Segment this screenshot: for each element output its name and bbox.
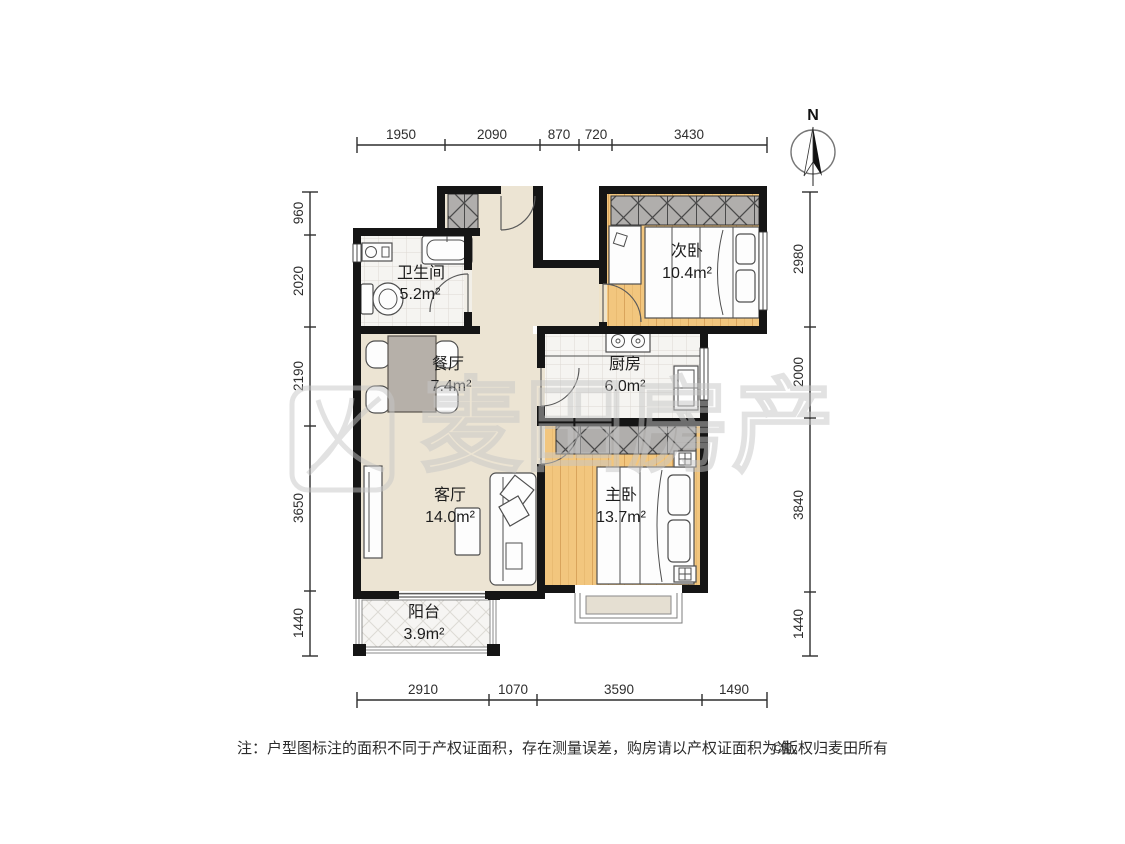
dim-top-1: 1950 [386, 127, 416, 142]
balcony-slider-icon [399, 594, 485, 598]
footer: 注：户型图标注的面积不同于产权证面积，存在测量误差，购房请以产权证面积为准。 ©… [237, 740, 888, 757]
bay-window [575, 593, 682, 623]
washing-machine-icon [362, 243, 392, 261]
dim-bottom-3: 3590 [604, 682, 634, 697]
master-name: 主卧 [605, 486, 637, 504]
dim-right-3: 3840 [791, 490, 806, 520]
bedroom2-window-icon [759, 232, 767, 310]
dim-bottom-4: 1490 [719, 682, 749, 697]
dim-left-1: 960 [291, 202, 306, 225]
floorplan-svg: 1950 2090 870 720 3430 2910 1070 3590 14… [0, 0, 1125, 844]
dim-bottom-1: 2910 [408, 682, 438, 697]
watermark-text: 麦田房产 [420, 370, 836, 484]
dim-right-1: 2980 [791, 244, 806, 274]
balcony-area: 3.9m² [404, 626, 446, 643]
sofa-icon [490, 473, 536, 585]
dim-left-2: 2020 [291, 266, 306, 296]
bedroom2-wardrobe-icon [611, 196, 759, 225]
north-label: N [807, 107, 819, 124]
bedroom2-name: 次卧 [671, 242, 703, 260]
dim-top-3: 870 [548, 127, 571, 142]
dim-right-4: 1440 [791, 609, 806, 639]
balcony-name: 阳台 [408, 603, 440, 621]
living-area: 14.0m² [425, 509, 475, 526]
dim-left-4: 3650 [291, 493, 306, 523]
desk-icon [609, 226, 641, 284]
dim-left-5: 1440 [291, 608, 306, 638]
bathroom-area: 5.2m² [400, 286, 442, 303]
entry-closet-icon [448, 194, 478, 232]
tv-cabinet-icon [364, 466, 382, 558]
dim-top-2: 2090 [477, 127, 507, 142]
floorplan-page: 1950 2090 870 720 3430 2910 1070 3590 14… [0, 0, 1125, 844]
north-arrow-icon: N [791, 107, 835, 186]
dim-bottom-2: 1070 [498, 682, 528, 697]
bathroom-name: 卫生间 [397, 264, 445, 282]
dim-top-4: 720 [585, 127, 608, 142]
footer-copyright: ©版权归麦田所有 [772, 740, 888, 757]
footer-note: 注：户型图标注的面积不同于产权证面积，存在测量误差，购房请以产权证面积为准。 [237, 740, 807, 757]
bedroom2-area: 10.4m² [662, 265, 712, 282]
bathroom-window-icon [353, 244, 361, 262]
living-name: 客厅 [434, 486, 466, 504]
balcony-frame [356, 594, 496, 653]
master-area: 13.7m² [596, 509, 646, 526]
toilet-icon [361, 283, 403, 315]
dim-top-5: 3430 [674, 127, 704, 142]
